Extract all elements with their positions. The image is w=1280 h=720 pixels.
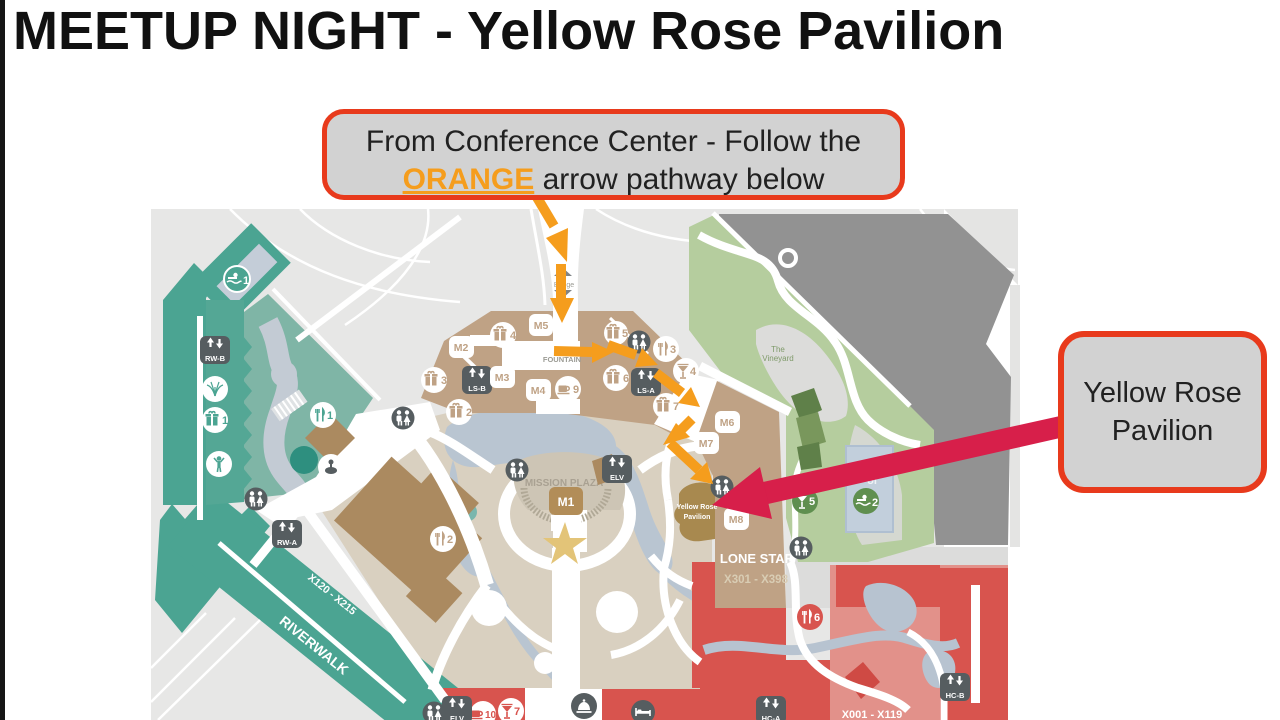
svg-text:2: 2 [447,534,453,546]
svg-text:X001 - X119: X001 - X119 [842,709,903,720]
svg-text:M8: M8 [729,514,744,526]
svg-text:2: 2 [872,497,878,509]
svg-text:5: 5 [622,328,628,340]
svg-text:M5: M5 [534,320,549,332]
svg-text:9: 9 [573,384,579,396]
svg-text:4: 4 [510,330,517,342]
svg-text:3: 3 [670,344,676,356]
svg-text:10: 10 [485,710,497,720]
svg-text:6: 6 [814,612,820,624]
svg-text:LONE STAR: LONE STAR [720,551,795,566]
svg-text:LS-B: LS-B [468,384,486,393]
svg-text:2: 2 [466,407,472,419]
svg-text:1: 1 [327,410,333,422]
svg-text:HC-A: HC-A [762,714,781,720]
svg-text:ELV: ELV [450,714,464,720]
svg-text:ELV: ELV [610,473,624,482]
svg-text:RW-B: RW-B [205,354,226,363]
svg-text:The: The [771,345,785,354]
svg-text:Pavilion: Pavilion [684,514,711,521]
svg-text:Vineyard: Vineyard [762,354,793,363]
svg-text:6: 6 [623,373,629,385]
svg-text:LS-A: LS-A [637,386,655,395]
svg-text:1: 1 [222,415,228,427]
svg-text:7: 7 [514,706,520,718]
svg-text:RW-A: RW-A [277,538,298,547]
svg-text:1: 1 [243,275,249,287]
svg-text:X301 - X398: X301 - X398 [724,574,789,586]
svg-text:3: 3 [441,375,447,387]
svg-text:HC-B: HC-B [946,691,965,700]
svg-text:M6: M6 [720,417,735,429]
svg-text:Yellow Rose: Yellow Rose [677,504,718,511]
svg-text:M4: M4 [531,385,546,397]
svg-text:5: 5 [809,496,815,508]
svg-text:M1: M1 [558,495,575,509]
svg-text:4: 4 [690,366,697,378]
svg-text:M3: M3 [495,372,510,384]
svg-text:M7: M7 [699,438,714,450]
svg-text:M2: M2 [454,342,469,354]
